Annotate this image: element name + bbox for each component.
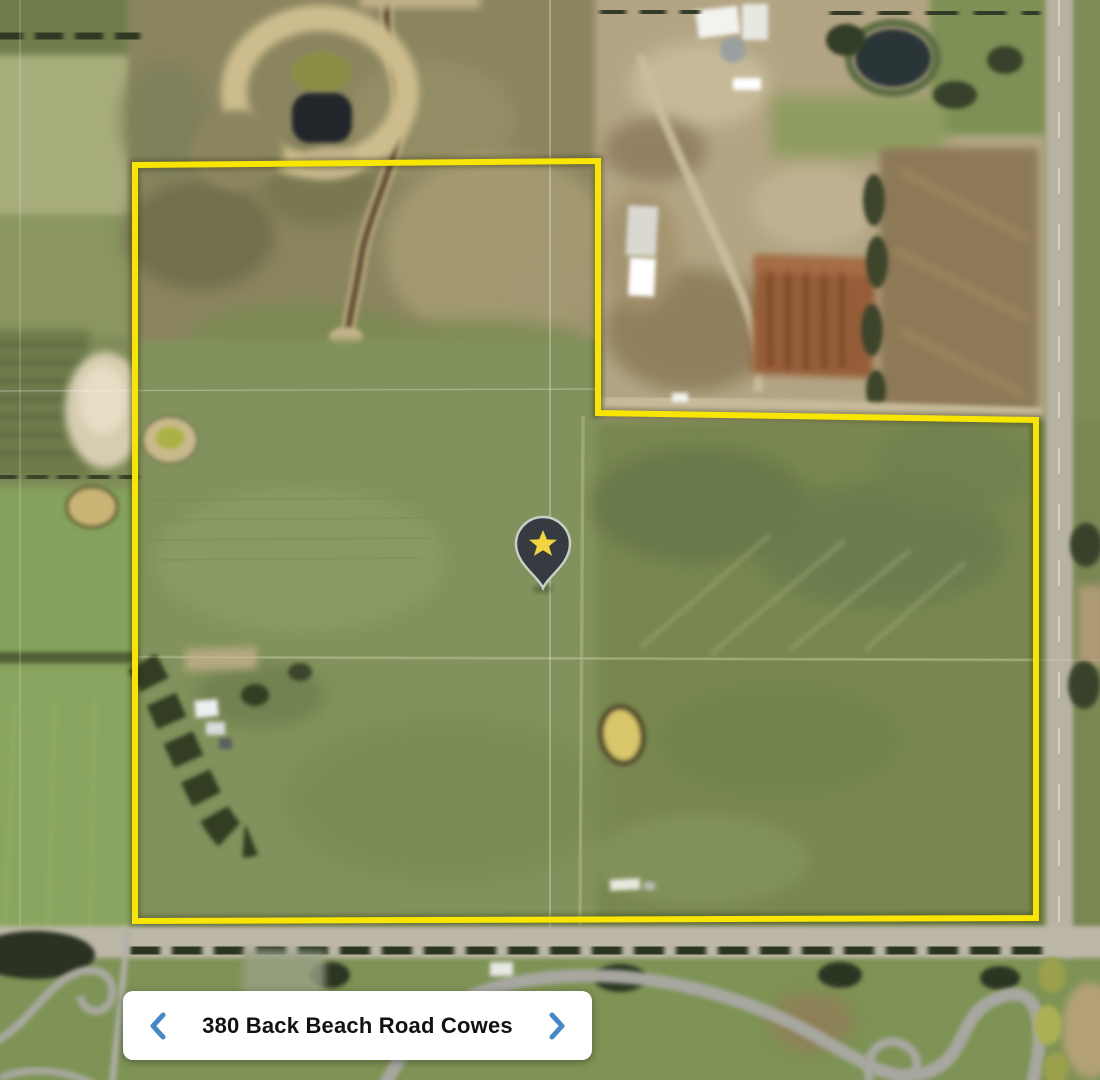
address-label: 380 Back Beach Road Cowes <box>169 1013 546 1039</box>
satellite-map[interactable]: 380 Back Beach Road Cowes <box>0 0 1100 1080</box>
aerial-imagery <box>0 0 1100 1080</box>
industrial-yard <box>595 0 1048 425</box>
east-road <box>1035 0 1100 1080</box>
address-card: 380 Back Beach Road Cowes <box>123 991 592 1060</box>
chevron-right-icon[interactable] <box>546 1011 568 1041</box>
property-paddocks <box>67 340 1038 925</box>
chevron-left-icon[interactable] <box>147 1011 169 1041</box>
scrub-and-dam <box>120 0 630 371</box>
